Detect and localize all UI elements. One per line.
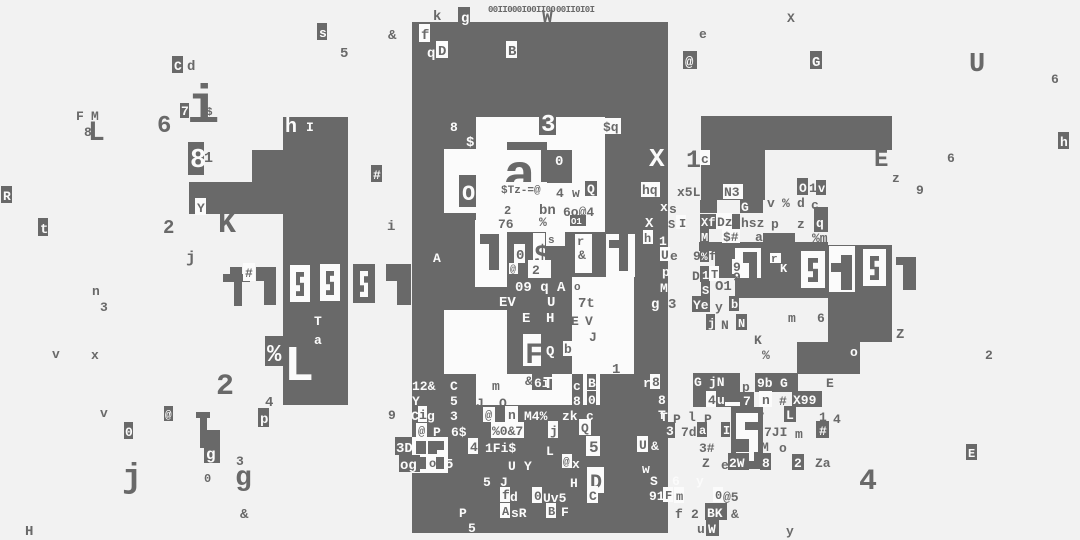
svg-text:W: W: [708, 522, 716, 537]
svg-text:r: r: [643, 376, 651, 391]
svg-text:6: 6: [947, 151, 955, 166]
svg-text:L: L: [88, 118, 105, 149]
svg-text:0: 0: [204, 472, 211, 486]
svg-text:a: a: [314, 333, 322, 348]
svg-text:6: 6: [817, 311, 825, 326]
svg-text:Z: Z: [896, 327, 904, 343]
svg-text:3D: 3D: [396, 441, 413, 457]
svg-text:g: g: [235, 463, 252, 494]
svg-text:O1: O1: [715, 279, 732, 295]
svg-text:$#: $#: [723, 230, 739, 245]
svg-text:H: H: [546, 311, 554, 327]
svg-text:M: M: [660, 281, 668, 296]
svg-text:2W: 2W: [729, 456, 745, 471]
svg-text:6: 6: [1051, 72, 1059, 87]
svg-text:8: 8: [652, 375, 660, 390]
svg-text:0: 0: [555, 154, 563, 170]
svg-text:m: m: [492, 379, 500, 394]
svg-text:&: &: [578, 248, 586, 263]
svg-text:00II0I0I: 00II0I0I: [556, 5, 595, 15]
svg-text:9: 9: [388, 408, 396, 423]
svg-text:i: i: [419, 408, 427, 423]
svg-text:0: 0: [534, 489, 542, 504]
svg-text:3: 3: [666, 424, 674, 439]
svg-text:K: K: [218, 208, 236, 242]
svg-text:4: 4: [859, 465, 877, 499]
svg-text:g: g: [206, 446, 216, 464]
svg-text:S: S: [702, 284, 709, 298]
svg-text:76: 76: [498, 217, 514, 232]
svg-text:o: o: [779, 441, 787, 456]
svg-text:y: y: [715, 300, 723, 315]
svg-text:g: g: [651, 297, 659, 313]
svg-text:L: L: [498, 327, 506, 343]
svg-text:Z: Z: [702, 456, 710, 471]
svg-text:8: 8: [573, 394, 581, 409]
svg-text:&: &: [388, 28, 397, 44]
svg-text:9b: 9b: [757, 376, 773, 391]
svg-text:b: b: [731, 298, 738, 312]
svg-text:BK: BK: [707, 506, 723, 521]
svg-text:E: E: [874, 147, 888, 174]
svg-text:d: d: [797, 196, 805, 211]
svg-text:d: d: [187, 59, 195, 75]
svg-text:F: F: [561, 505, 569, 520]
svg-text:09 q A: 09 q A: [515, 280, 566, 296]
svg-text:e: e: [721, 458, 729, 473]
svg-text:i: i: [187, 78, 219, 139]
svg-text:1: 1: [659, 234, 667, 249]
svg-text:A: A: [433, 251, 441, 266]
svg-text:2: 2: [216, 370, 234, 404]
svg-text:F: F: [665, 489, 672, 503]
svg-text:1: 1: [612, 362, 620, 378]
svg-text:4: 4: [470, 440, 478, 455]
svg-text:D: D: [438, 44, 446, 60]
svg-text:U: U: [661, 248, 669, 263]
svg-text:M: M: [761, 440, 769, 455]
svg-text:a: a: [755, 230, 763, 245]
svg-text:I: I: [679, 217, 686, 231]
svg-text:@: @: [685, 55, 694, 71]
svg-text:C: C: [411, 409, 419, 424]
svg-text:Y: Y: [197, 201, 205, 216]
svg-text:&: &: [240, 507, 249, 523]
svg-text:0: 0: [516, 248, 524, 264]
svg-text:2: 2: [532, 263, 540, 278]
svg-text:sR: sR: [511, 506, 527, 521]
svg-text:v: v: [100, 406, 108, 421]
svg-text:E: E: [968, 447, 975, 461]
svg-text:P: P: [433, 425, 441, 440]
svg-text:7d: 7d: [681, 425, 697, 440]
svg-text:%m: %m: [812, 231, 828, 246]
svg-text:s: s: [319, 26, 327, 41]
svg-text:2: 2: [163, 217, 174, 239]
svg-text:@: @: [510, 264, 516, 276]
svg-text:q: q: [816, 216, 824, 231]
svg-text:5: 5: [483, 475, 491, 490]
svg-text:G: G: [812, 55, 820, 71]
svg-text:u: u: [717, 393, 725, 408]
svg-text:$q: $q: [603, 120, 619, 135]
svg-text:E: E: [571, 314, 579, 329]
svg-text:f: f: [675, 507, 683, 522]
svg-text:p: p: [771, 217, 779, 232]
svg-text:og: og: [400, 458, 417, 474]
svg-text:2: 2: [691, 507, 699, 522]
svg-text:L: L: [786, 408, 794, 423]
svg-text:n: n: [762, 393, 770, 408]
svg-text:c: c: [573, 379, 581, 394]
svg-text:$: $: [466, 135, 474, 151]
svg-text:U: U: [508, 459, 516, 474]
svg-text:N: N: [721, 318, 729, 333]
svg-text:f: f: [502, 488, 510, 503]
svg-text:5: 5: [445, 457, 453, 473]
svg-text:1: 1: [686, 146, 701, 175]
svg-text:R: R: [3, 189, 11, 204]
svg-text:%: %: [267, 342, 282, 369]
svg-text:@: @: [563, 457, 570, 469]
svg-text:O: O: [799, 181, 807, 196]
svg-text:w: w: [642, 462, 650, 477]
svg-text:G: G: [780, 376, 788, 391]
svg-text:zk: zk: [562, 409, 578, 424]
svg-text:B: B: [588, 376, 596, 391]
svg-text:7: 7: [181, 104, 189, 119]
svg-text:8: 8: [450, 120, 458, 135]
svg-text:2: 2: [794, 456, 802, 471]
svg-text:%0&7: %0&7: [492, 424, 523, 439]
svg-text:U: U: [547, 295, 555, 311]
svg-text:0: 0: [125, 425, 133, 440]
svg-text:x: x: [91, 348, 99, 363]
svg-text:e: e: [670, 249, 678, 264]
svg-text:3: 3: [541, 112, 555, 139]
svg-text:j: j: [186, 249, 196, 267]
svg-text:@: @: [418, 425, 425, 439]
svg-text:n: n: [508, 408, 516, 423]
svg-text:N: N: [738, 317, 745, 331]
svg-text:c: c: [701, 152, 709, 167]
svg-text:&: &: [651, 439, 659, 454]
svg-text:2: 2: [985, 348, 993, 363]
svg-text:Q: Q: [546, 344, 554, 360]
svg-text:5: 5: [340, 46, 348, 62]
svg-text:Za: Za: [815, 456, 831, 471]
svg-text:x5L: x5L: [677, 185, 701, 200]
svg-text:@: @: [165, 410, 172, 422]
svg-text:B: B: [548, 505, 555, 519]
svg-text:8: 8: [658, 393, 666, 408]
svg-text:h: h: [285, 116, 297, 139]
svg-text:&: &: [731, 507, 739, 522]
svg-text:z: z: [797, 217, 805, 232]
svg-text:EV: EV: [499, 295, 516, 311]
svg-text:7t: 7t: [578, 296, 595, 312]
svg-text:I: I: [723, 424, 730, 438]
svg-text:U: U: [969, 50, 985, 80]
svg-text:%: %: [782, 196, 790, 211]
svg-text:G: G: [694, 375, 702, 390]
svg-text:H: H: [570, 476, 578, 491]
svg-text:91: 91: [649, 489, 665, 504]
svg-text:Xf: Xf: [701, 216, 715, 230]
svg-text:1: 1: [702, 269, 709, 283]
svg-text:s: s: [669, 202, 677, 217]
svg-text:p: p: [260, 412, 268, 428]
svg-text:J: J: [589, 330, 597, 345]
svg-text:12&: 12&: [412, 379, 436, 394]
svg-text:V: V: [585, 314, 593, 329]
svg-text:1Fi$: 1Fi$: [485, 441, 516, 456]
svg-text:X: X: [787, 11, 795, 26]
svg-text:O: O: [462, 182, 475, 207]
svg-text:C: C: [450, 379, 458, 394]
svg-text:hsz: hsz: [741, 216, 764, 231]
svg-text:q: q: [427, 46, 435, 62]
svg-text:hq: hq: [642, 183, 658, 198]
svg-text:6o@4: 6o@4: [563, 205, 594, 220]
svg-text:U: U: [639, 438, 647, 453]
svg-text:1: 1: [204, 150, 213, 167]
svg-text:3: 3: [450, 409, 458, 424]
svg-text:5: 5: [468, 521, 476, 536]
svg-text:T: T: [543, 375, 553, 394]
svg-text:9: 9: [916, 183, 924, 198]
svg-text:v: v: [767, 196, 775, 211]
svg-text:u: u: [697, 522, 705, 537]
svg-text:W: W: [542, 8, 553, 28]
svg-text:K: K: [754, 333, 762, 348]
svg-text:E: E: [522, 311, 530, 327]
svg-text:6$: 6$: [451, 425, 467, 440]
svg-text:f: f: [421, 28, 429, 44]
svg-text:&: &: [525, 374, 533, 389]
svg-text:f: f: [709, 249, 717, 264]
svg-text:S: S: [668, 218, 675, 232]
svg-text:0: 0: [588, 393, 596, 408]
svg-text:I: I: [306, 120, 314, 135]
svg-text:#: #: [819, 424, 827, 439]
svg-text:5: 5: [589, 439, 599, 457]
svg-text:J: J: [476, 396, 484, 411]
svg-text:P: P: [459, 506, 467, 521]
svg-text:%: %: [701, 252, 708, 264]
svg-text:6: 6: [157, 113, 171, 140]
svg-text:M4%: M4%: [524, 409, 548, 424]
svg-text:$Tz-=@: $Tz-=@: [501, 185, 541, 197]
svg-text:9: 9: [733, 270, 741, 285]
svg-text:L: L: [546, 444, 554, 459]
svg-text:@: @: [485, 409, 492, 423]
svg-text:E: E: [826, 376, 834, 391]
svg-text:4: 4: [708, 393, 716, 408]
svg-text:o: o: [850, 345, 858, 360]
svg-text:3#: 3#: [699, 441, 715, 456]
svg-text:g: g: [461, 11, 469, 27]
svg-text:d: d: [510, 490, 518, 505]
svg-text:v: v: [818, 182, 825, 196]
svg-text:v: v: [52, 347, 60, 362]
svg-text:6: 6: [672, 474, 680, 489]
svg-text:j: j: [708, 317, 715, 331]
svg-text:x: x: [572, 457, 580, 472]
svg-text:y: y: [786, 524, 794, 539]
svg-text:r: r: [771, 254, 778, 266]
svg-text:7: 7: [743, 394, 751, 409]
svg-text:8: 8: [762, 456, 770, 471]
svg-text:j: j: [122, 460, 142, 498]
svg-text:3: 3: [668, 297, 676, 313]
svg-text:Q: Q: [587, 182, 595, 197]
svg-text:$: $: [206, 107, 213, 119]
svg-text:l: l: [688, 410, 696, 425]
svg-text:F: F: [525, 339, 543, 373]
svg-text:3: 3: [100, 300, 108, 315]
svg-text:L: L: [284, 339, 314, 396]
svg-text:Ye: Ye: [693, 298, 709, 313]
svg-text:T: T: [314, 314, 322, 329]
svg-text:s: s: [548, 235, 555, 247]
svg-text:0: 0: [715, 489, 722, 503]
svg-text:x: x: [660, 200, 668, 215]
svg-text:9: 9: [693, 249, 701, 264]
svg-text:M: M: [701, 231, 708, 245]
svg-text:5: 5: [450, 394, 458, 409]
svg-text:%: %: [539, 215, 547, 230]
svg-text:F: F: [76, 109, 84, 124]
svg-text:7JI: 7JI: [764, 425, 787, 440]
svg-text:B: B: [508, 44, 517, 60]
svg-text:g: g: [427, 409, 435, 424]
svg-text:o: o: [574, 282, 581, 294]
svg-text:X: X: [645, 216, 654, 232]
svg-text:m: m: [788, 311, 796, 326]
svg-text:b: b: [564, 342, 572, 357]
svg-text:K: K: [780, 262, 788, 276]
svg-text:Y: Y: [524, 459, 532, 474]
svg-text:z: z: [892, 171, 900, 186]
svg-text:o: o: [429, 457, 436, 471]
svg-text:w: w: [572, 186, 580, 201]
svg-text:jN: jN: [709, 375, 725, 390]
svg-text:r: r: [577, 235, 584, 249]
svg-text:m: m: [676, 490, 683, 504]
svg-text:1: 1: [809, 181, 817, 196]
svg-text:C: C: [174, 59, 182, 74]
svg-text:X: X: [649, 144, 665, 174]
svg-text:#: #: [373, 168, 381, 183]
svg-text:m: m: [795, 427, 803, 442]
svg-text:N3: N3: [724, 185, 740, 200]
svg-text:@5: @5: [723, 490, 739, 505]
svg-text:Q: Q: [581, 421, 589, 436]
svg-text:4: 4: [556, 186, 564, 201]
svg-text:h: h: [1060, 135, 1068, 150]
svg-text:y: y: [696, 474, 704, 489]
svg-text:%: %: [762, 348, 770, 363]
svg-text:C: C: [589, 489, 597, 504]
svg-text:S: S: [650, 474, 658, 489]
svg-text:Dz: Dz: [717, 215, 733, 230]
svg-text:a: a: [503, 145, 537, 209]
svg-text:a: a: [699, 424, 706, 438]
svg-text:j: j: [550, 424, 558, 439]
svg-text:X99: X99: [793, 393, 817, 408]
svg-text:#: #: [245, 266, 253, 281]
svg-text:D: D: [692, 269, 700, 284]
svg-text:n: n: [92, 284, 100, 299]
svg-text:h: h: [644, 232, 651, 246]
svg-text:p: p: [662, 265, 670, 280]
svg-text:H: H: [25, 524, 33, 540]
svg-text:2: 2: [504, 204, 511, 218]
svg-text:i: i: [387, 219, 395, 235]
svg-text:G: G: [741, 200, 749, 215]
svg-text:A: A: [502, 505, 510, 519]
svg-text:e: e: [699, 27, 707, 42]
svg-text:k: k: [433, 9, 441, 25]
svg-text:4: 4: [833, 412, 841, 427]
svg-text:t: t: [40, 222, 48, 238]
